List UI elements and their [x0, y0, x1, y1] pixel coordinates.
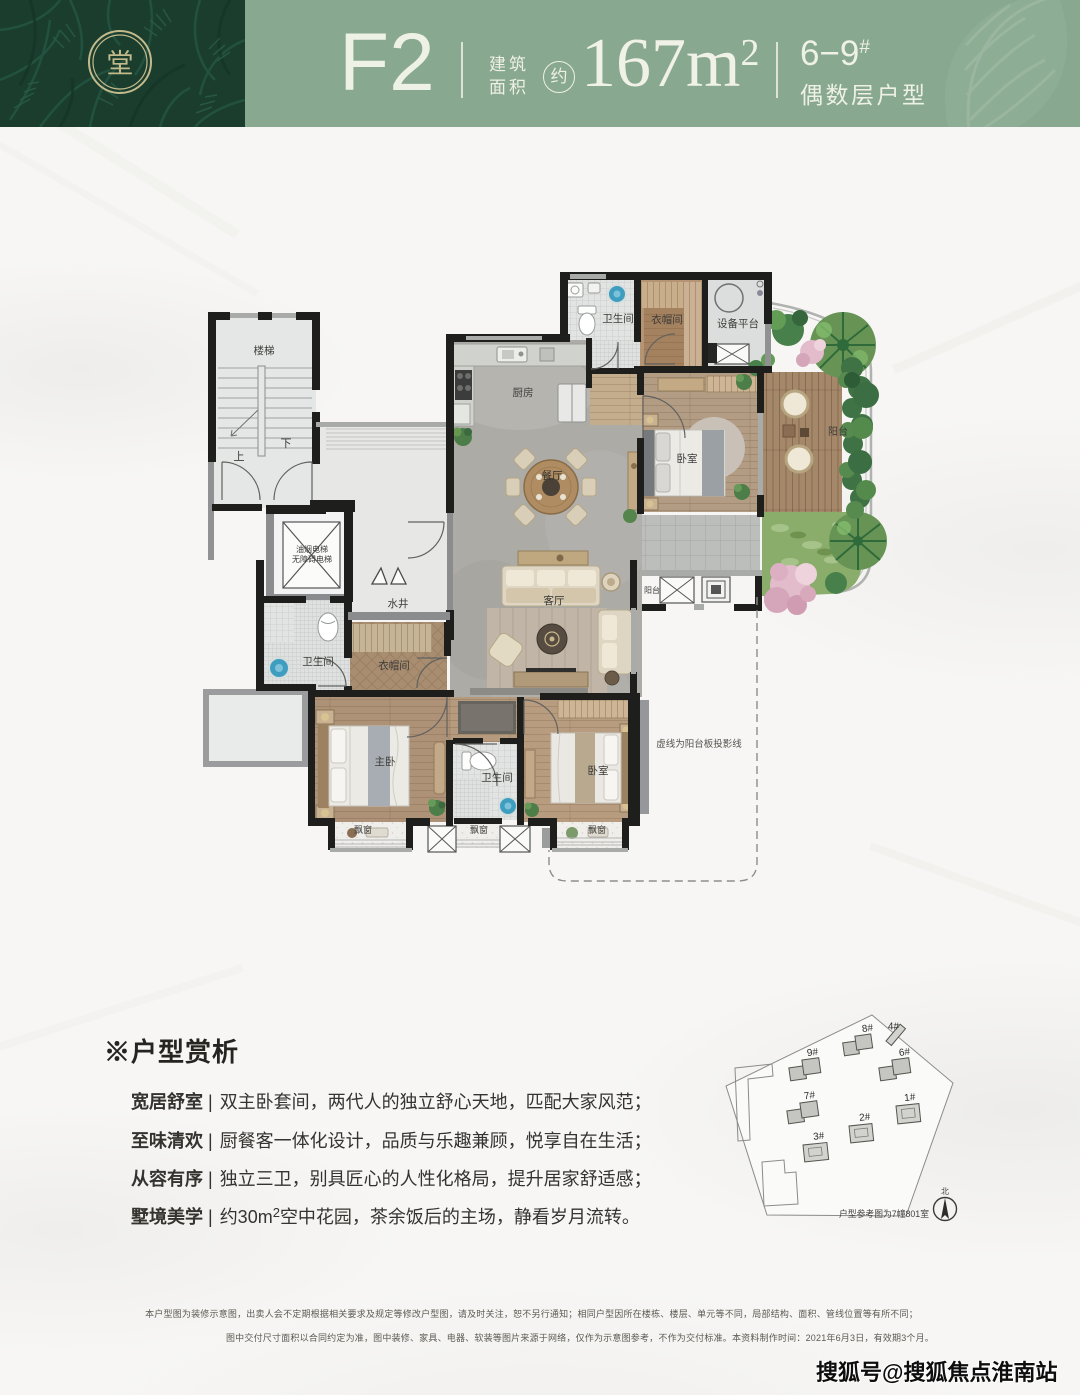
svg-text:客厅: 客厅: [544, 594, 565, 607]
svg-text:2#: 2#: [859, 1112, 872, 1124]
svg-text:飘窗: 飘窗: [588, 824, 606, 835]
svg-text:下: 下: [281, 438, 292, 450]
svg-text:7#: 7#: [803, 1090, 816, 1103]
svg-text:设备平台: 设备平台: [717, 317, 759, 330]
svg-text:卫生间: 卫生间: [602, 312, 634, 325]
svg-text:油烟电梯: 油烟电梯: [296, 544, 328, 554]
svg-text:6#: 6#: [898, 1046, 911, 1059]
svg-text:阳台: 阳台: [644, 585, 660, 595]
svg-text:4#: 4#: [888, 1021, 900, 1032]
svg-text:上: 上: [234, 450, 245, 463]
svg-text:8#: 8#: [861, 1023, 874, 1036]
svg-text:卧室: 卧室: [588, 764, 609, 777]
svg-text:飘窗: 飘窗: [354, 824, 372, 835]
svg-text:水井: 水井: [388, 597, 409, 610]
svg-text:衣帽间: 衣帽间: [378, 659, 410, 672]
svg-text:卫生间: 卫生间: [481, 771, 513, 784]
svg-text:无障碍电梯: 无障碍电梯: [292, 554, 332, 564]
svg-text:3#: 3#: [813, 1131, 826, 1143]
svg-text:厨房: 厨房: [513, 386, 534, 399]
svg-text:飘窗: 飘窗: [470, 824, 488, 835]
svg-text:衣帽间: 衣帽间: [651, 313, 683, 326]
svg-text:主卧: 主卧: [375, 755, 396, 768]
svg-text:卧室: 卧室: [677, 452, 698, 465]
svg-text:户型参考图为7幢801室: 户型参考图为7幢801室: [839, 1208, 929, 1219]
svg-text:1#: 1#: [904, 1092, 917, 1104]
svg-text:虚线为阳台板投影线: 虚线为阳台板投影线: [656, 738, 742, 750]
svg-text:阳台: 阳台: [828, 425, 848, 438]
svg-text:9#: 9#: [806, 1047, 819, 1060]
svg-text:餐厅: 餐厅: [542, 469, 563, 482]
svg-text:卫生间: 卫生间: [302, 655, 334, 668]
svg-text:北: 北: [941, 1187, 949, 1196]
svg-text:楼梯: 楼梯: [254, 344, 275, 357]
